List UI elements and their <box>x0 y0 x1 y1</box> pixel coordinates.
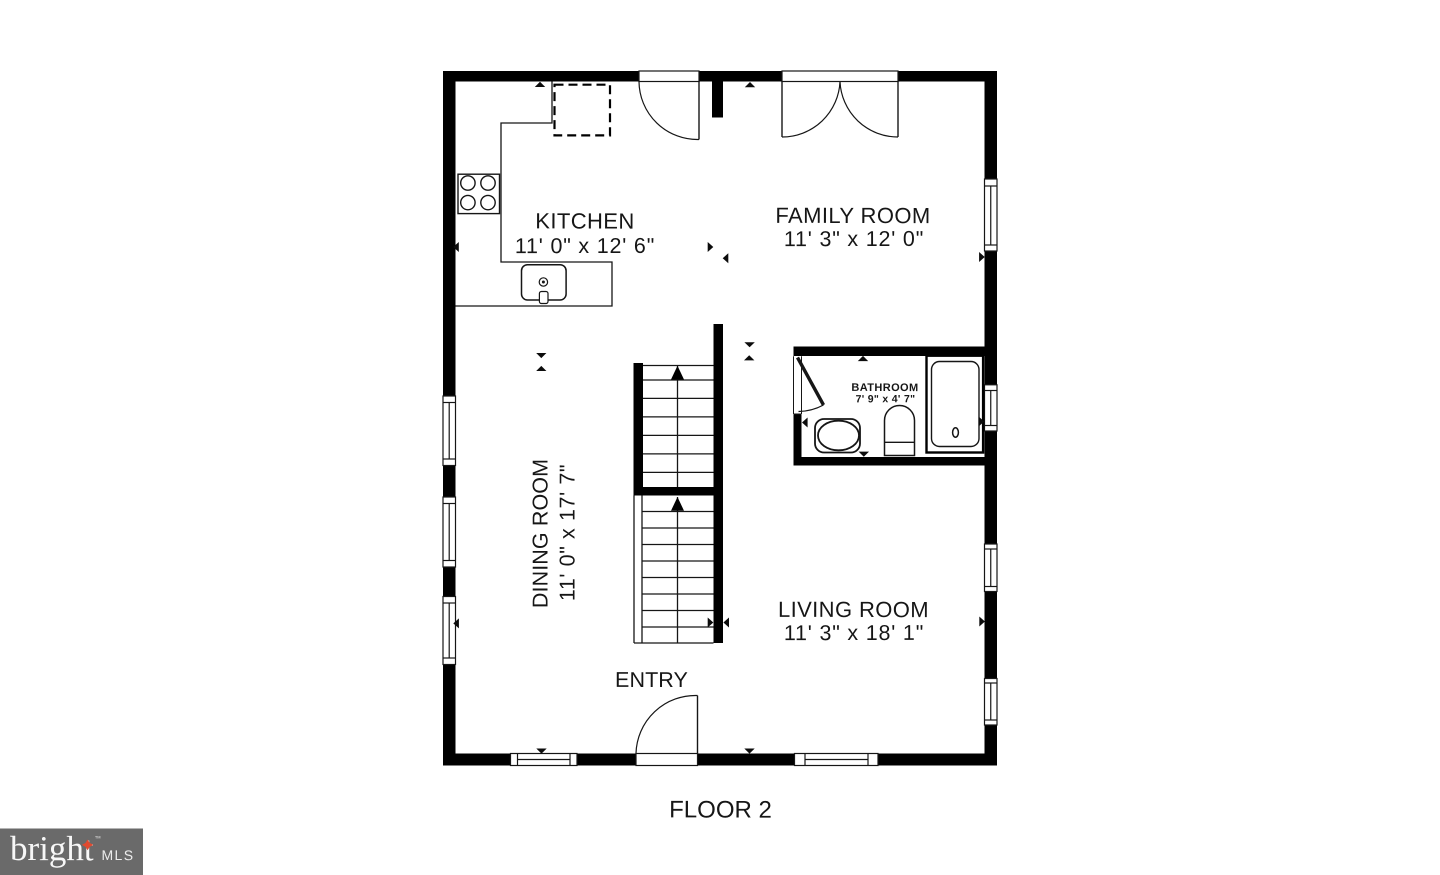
svg-text:11' 0" x 17' 7": 11' 0" x 17' 7" <box>556 464 580 601</box>
svg-text:11' 0" x 12' 6": 11' 0" x 12' 6" <box>515 234 655 258</box>
svg-text:KITCHEN: KITCHEN <box>535 208 634 233</box>
svg-text:ENTRY: ENTRY <box>615 668 688 692</box>
svg-text:LIVING ROOM: LIVING ROOM <box>778 597 929 622</box>
svg-text:FAMILY ROOM: FAMILY ROOM <box>775 203 930 228</box>
svg-text:7' 9" x 4' 7": 7' 9" x 4' 7" <box>856 393 916 405</box>
svg-text:bright: bright <box>10 829 94 868</box>
svg-text:11' 3" x 12' 0": 11' 3" x 12' 0" <box>784 227 924 251</box>
svg-text:DINING ROOM: DINING ROOM <box>529 459 553 608</box>
svg-text:™: ™ <box>95 836 102 843</box>
svg-text:11' 3" x 18' 1": 11' 3" x 18' 1" <box>784 621 924 645</box>
svg-text:FLOOR 2: FLOOR 2 <box>669 796 772 823</box>
svg-text:MLS: MLS <box>101 847 134 863</box>
